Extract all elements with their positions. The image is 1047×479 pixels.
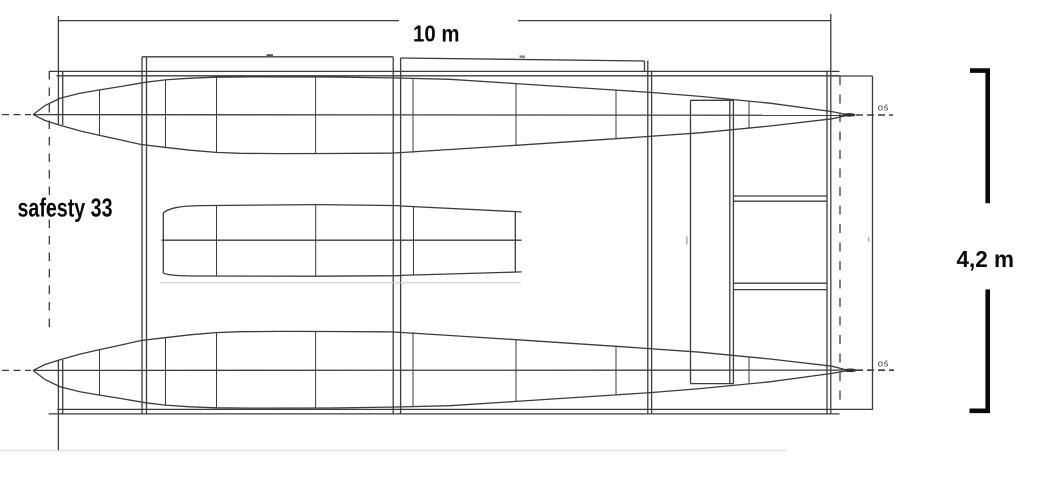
svg-text:4,2 m: 4,2 m [957,246,1015,272]
svg-text:oś: oś [878,102,889,113]
svg-text:10 m: 10 m [413,21,460,47]
svg-text:safesty 33: safesty 33 [18,193,113,223]
svg-text:oś: oś [878,359,889,370]
